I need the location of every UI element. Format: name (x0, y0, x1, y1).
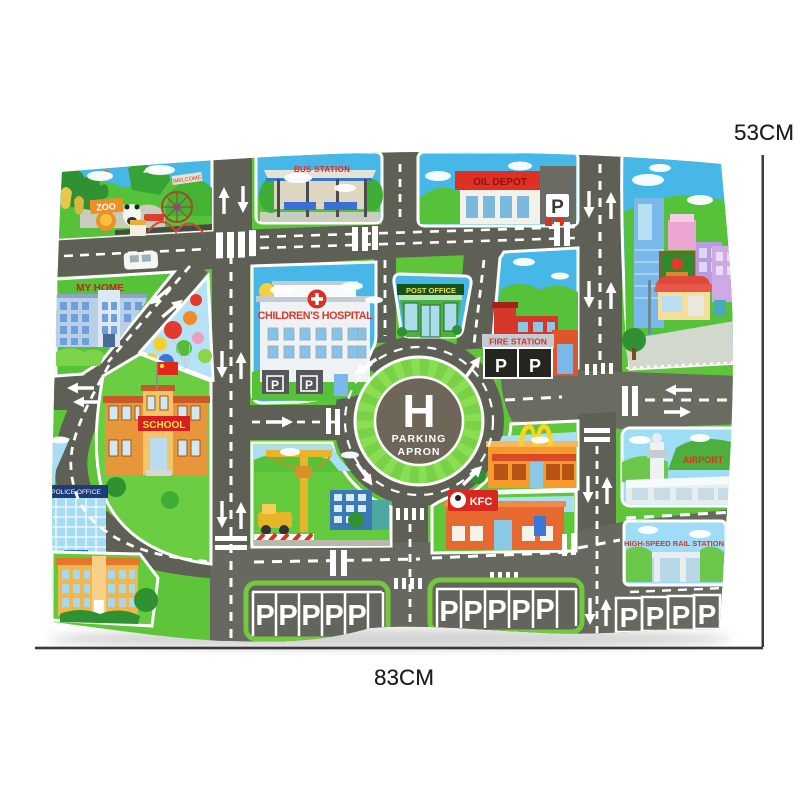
svg-text:P: P (271, 378, 279, 392)
svg-text:53CM: 53CM (734, 120, 794, 145)
svg-text:P: P (301, 600, 320, 632)
svg-text:P: P (511, 595, 530, 627)
svg-text:PARKING: PARKING (392, 433, 447, 445)
svg-text:FIRE STATION: FIRE STATION (489, 337, 547, 347)
svg-text:POST OFFICE: POST OFFICE (406, 286, 456, 295)
svg-text:H: H (402, 385, 435, 437)
svg-text:P: P (529, 356, 541, 376)
svg-text:APRON: APRON (398, 446, 441, 458)
svg-text:P: P (551, 197, 564, 218)
svg-text:OIL DEPOT: OIL DEPOT (473, 177, 527, 188)
svg-text:P: P (672, 600, 691, 631)
svg-text:P: P (255, 600, 274, 632)
svg-text:83CM: 83CM (374, 665, 434, 690)
svg-text:P: P (620, 602, 639, 633)
svg-text:KFC: KFC (470, 496, 493, 508)
svg-text:P: P (305, 378, 313, 392)
svg-text:P: P (535, 594, 554, 626)
svg-text:P: P (439, 596, 458, 628)
svg-text:P: P (324, 600, 343, 632)
svg-text:P: P (278, 600, 297, 632)
svg-text:AIRPORT: AIRPORT (683, 455, 724, 465)
svg-text:BUS STATION: BUS STATION (294, 165, 350, 174)
svg-text:P: P (463, 596, 482, 628)
svg-text:P: P (646, 601, 665, 632)
svg-text:P: P (347, 600, 366, 632)
svg-text:P: P (698, 599, 717, 630)
svg-text:P: P (487, 595, 506, 627)
svg-text:SCHOOL: SCHOOL (143, 420, 186, 431)
svg-text:P: P (495, 356, 507, 376)
svg-text:CHILDREN'S HOSPITAL: CHILDREN'S HOSPITAL (258, 310, 374, 322)
svg-text:ZOO: ZOO (96, 201, 116, 212)
